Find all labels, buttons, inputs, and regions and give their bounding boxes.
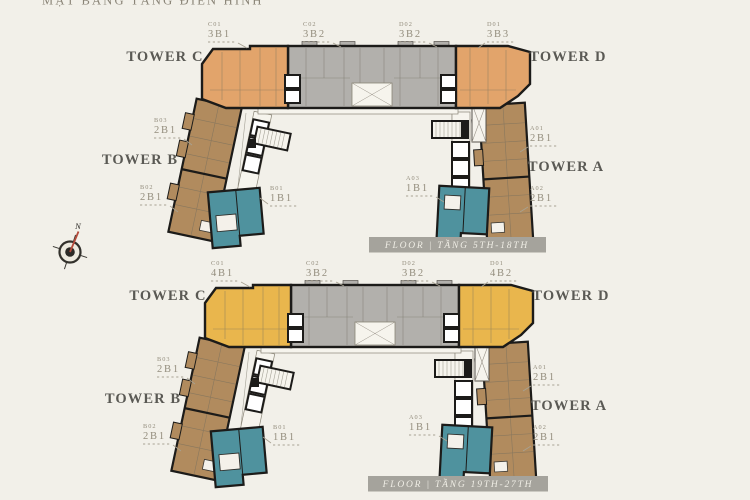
unit-label-b01: B01 1B1 (263, 424, 301, 445)
unit-code: A03 (406, 175, 420, 182)
compass-north-label: N (74, 221, 82, 231)
unit-code: C02 (306, 260, 320, 267)
unit-code: B02 (140, 184, 154, 191)
unit-type: 3B2 (306, 268, 329, 279)
unit-code: D02 (402, 260, 416, 267)
unit-type: 1B1 (409, 422, 432, 433)
unit-label-c01: C01 3B1 (208, 21, 247, 48)
unit-code: B03 (157, 356, 171, 363)
unit-type: 2B1 (154, 125, 177, 136)
unit-type: 2B1 (143, 431, 166, 442)
unit-type: 3B3 (487, 29, 510, 40)
leader-line (238, 43, 247, 48)
unit-label-c01: C01 4B1 (211, 260, 250, 287)
unit-label-b01: B01 1B1 (260, 185, 298, 206)
building-plan-2 (164, 281, 537, 488)
unit-type: 4B1 (211, 268, 234, 279)
compass: N (47, 221, 92, 275)
tower-d-label: TOWER D (532, 288, 609, 304)
tower-c-label: TOWER C (129, 288, 206, 304)
unit-code: B01 (270, 185, 284, 192)
unit-type: 3B1 (208, 29, 231, 40)
tower-a-label: TOWER A (531, 398, 607, 414)
floorplan-floors-19-27: TOWER C TOWER D TOWER B TOWER A C01 4B1 … (105, 260, 610, 492)
unit-type: 1B1 (273, 432, 296, 443)
page-title-cropped: MẶT BẰNG TẦNG ĐIỂN HÌNH (42, 0, 264, 8)
tower-b-label: TOWER B (102, 152, 178, 168)
floor-banner: FLOOR | TẦNG 19TH-27TH (368, 476, 548, 492)
tower-b-label: TOWER B (105, 391, 181, 407)
unit-code: A01 (533, 364, 547, 371)
unit-type: 2B1 (533, 372, 556, 383)
tower-d-label: TOWER D (529, 49, 606, 65)
unit-code: A02 (530, 185, 544, 192)
unit-code: A01 (530, 125, 544, 132)
unit-type: 2B1 (157, 364, 180, 375)
unit-type: 3B2 (303, 29, 326, 40)
unit-code: B02 (143, 423, 157, 430)
unit-code: C01 (211, 260, 225, 267)
unit-type: 3B2 (399, 29, 422, 40)
tower-c-label: TOWER C (126, 49, 203, 65)
unit-type: 1B1 (270, 193, 293, 204)
tower-a-label: TOWER A (528, 159, 604, 175)
unit-type: 1B1 (406, 183, 429, 194)
floorplan-floors-5-18: TOWER C TOWER D TOWER B TOWER A C01 3B1 … (102, 21, 607, 253)
unit-type: 3B2 (402, 268, 425, 279)
unit-code: C02 (303, 21, 317, 28)
banner-label: FLOOR | TẦNG 19TH-27TH (382, 478, 534, 490)
floorplan-canvas: MẶT BẰNG TẦNG ĐIỂN HÌNH N TOWER C TOWER … (0, 0, 750, 500)
unit-code: C01 (208, 21, 222, 28)
unit-code: D01 (487, 21, 501, 28)
floor-banner: FLOOR | TẦNG 5TH-18TH (369, 237, 546, 253)
building-plan-1 (161, 42, 534, 249)
unit-label-d01: D01 3B3 (478, 21, 515, 48)
unit-code: D02 (399, 21, 413, 28)
unit-type: 4B2 (490, 268, 513, 279)
unit-code: A03 (409, 414, 423, 421)
unit-code: B03 (154, 117, 168, 124)
unit-type: 2B1 (140, 192, 163, 203)
unit-type: 2B1 (530, 133, 553, 144)
unit-type: 2B1 (533, 432, 556, 443)
banner-label: FLOOR | TẦNG 5TH-18TH (384, 239, 529, 251)
unit-type: 2B1 (530, 193, 553, 204)
unit-code: A02 (533, 424, 547, 431)
leader-line (241, 282, 250, 287)
floorplan-page: MẶT BẰNG TẦNG ĐIỂN HÌNH N TOWER C TOWER … (0, 0, 750, 500)
unit-code: D01 (490, 260, 504, 267)
unit-code: B01 (273, 424, 287, 431)
unit-label-d01: D01 4B2 (481, 260, 518, 287)
